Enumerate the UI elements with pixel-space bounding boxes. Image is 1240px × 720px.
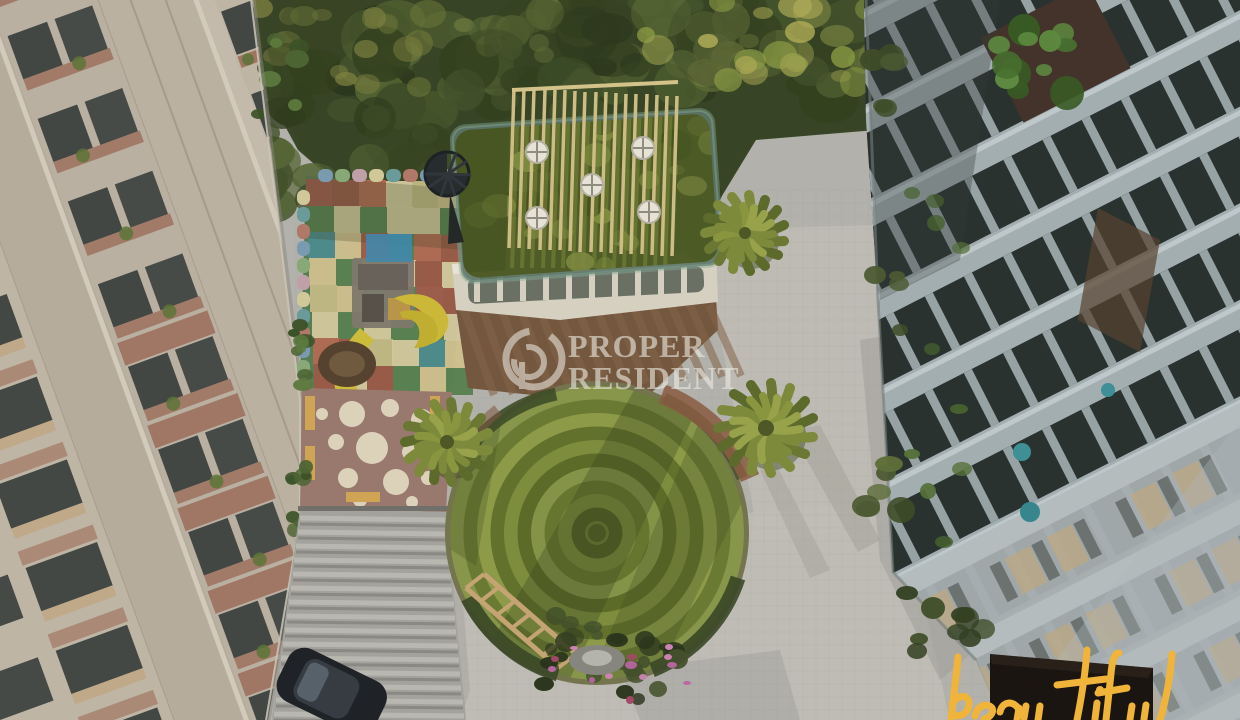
svg-text:PROPER: PROPER [568,328,706,364]
svg-text:RESIDENT: RESIDENT [568,360,740,396]
